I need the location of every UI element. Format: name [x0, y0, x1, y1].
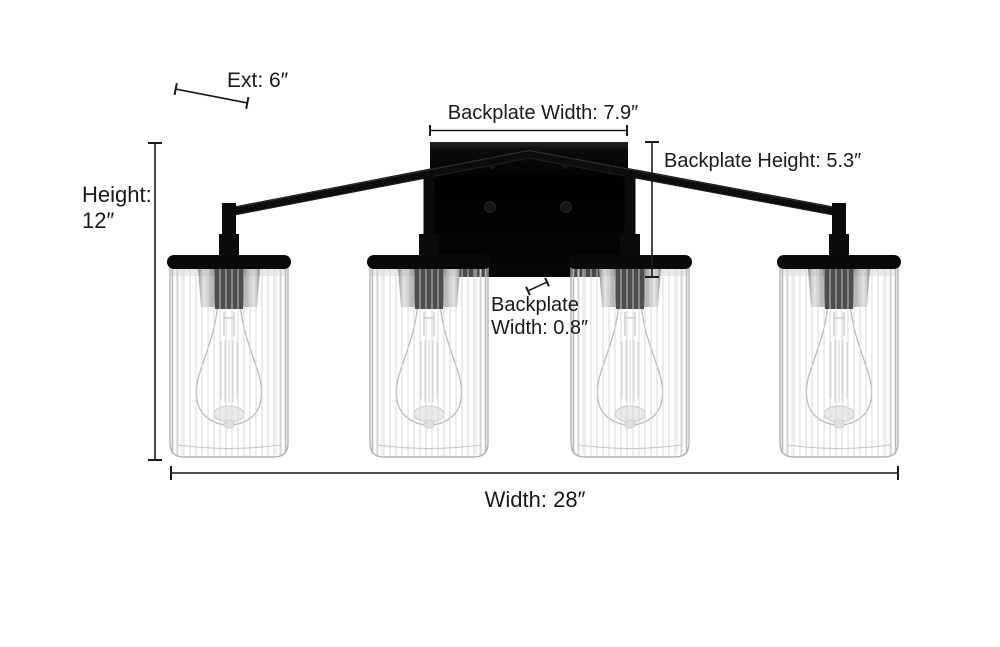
lamp-4 — [777, 234, 901, 457]
ext-dimension: Ext: 6″ — [175, 69, 289, 109]
lamp-1 — [167, 234, 291, 457]
vanity-light-diagram-canvas: Ext: 6″ Backplate Width: 7.9″ Backplate … — [0, 0, 1000, 647]
backplate-screw-right — [561, 202, 572, 213]
outer-elbow-left — [222, 203, 236, 238]
inner-stem-left — [424, 171, 435, 238]
ext-tick-right — [246, 97, 248, 109]
width-dimension: Width: 28″ — [171, 466, 898, 512]
backplate-depth-line — [528, 282, 547, 291]
ext-tick-left — [175, 83, 177, 95]
outer-elbow-right — [832, 203, 846, 238]
height-dimension: Height: 12″ — [82, 143, 162, 460]
backplate-width-label: Backplate Width: 7.9″ — [448, 102, 639, 124]
lamp-3 — [568, 234, 692, 457]
backplate-depth-label-line1: Backplate — [491, 294, 579, 316]
ext-label: Ext: 6″ — [227, 69, 289, 92]
backplate-depth-label-line2: Width: 0.8″ — [491, 317, 588, 339]
backplate-screw-left — [485, 202, 496, 213]
height-label-line1: Height: — [82, 182, 152, 207]
backplate-height-label: Backplate Height: 5.3″ — [664, 150, 861, 172]
backplate-width-dimension: Backplate Width: 7.9″ — [430, 102, 638, 136]
product-dimension-diagram: Ext: 6″ Backplate Width: 7.9″ Backplate … — [0, 0, 1000, 647]
inner-stem-right — [625, 171, 636, 238]
height-label-line2: 12″ — [82, 208, 114, 233]
width-label: Width: 28″ — [485, 487, 586, 512]
lamp-2 — [367, 234, 491, 457]
